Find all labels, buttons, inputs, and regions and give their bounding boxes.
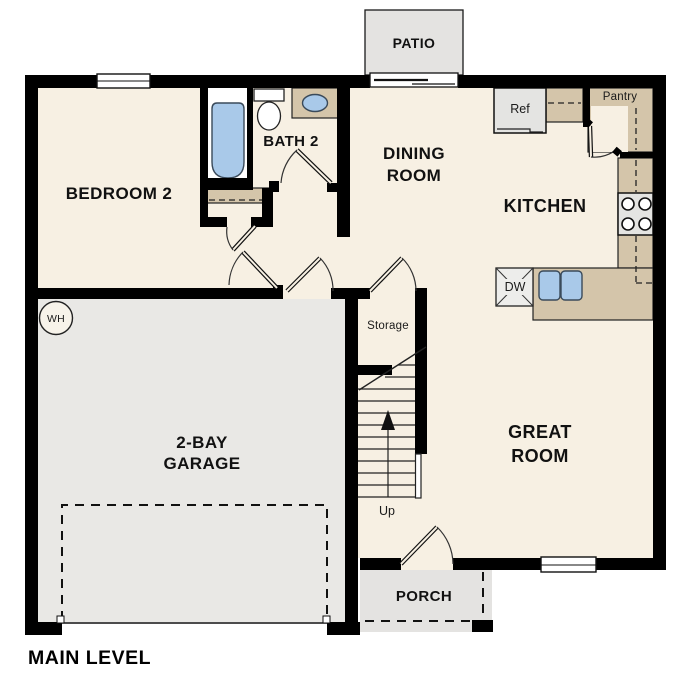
wall-storage-top-right bbox=[415, 288, 427, 299]
greatroom-label-line2: ROOM bbox=[511, 446, 569, 466]
wall-closet-foot-left bbox=[200, 217, 227, 227]
toilet-tank-icon bbox=[254, 89, 284, 101]
storage-label: Storage bbox=[367, 320, 409, 332]
wall-garage-right bbox=[345, 288, 358, 635]
wall-bath-door-stub-right bbox=[327, 183, 338, 192]
bedroom2-label: BEDROOM 2 bbox=[66, 184, 173, 203]
wall-top-right bbox=[458, 75, 666, 88]
wall-storage-top-left bbox=[358, 288, 370, 299]
stairs-handrail bbox=[416, 454, 422, 498]
pantry-door-recess bbox=[591, 106, 628, 152]
kitchen-sink-icon bbox=[539, 271, 582, 300]
wall-pantry-bottom bbox=[620, 152, 653, 158]
wall-greatroom-bottom-b bbox=[453, 558, 541, 570]
wall-storage-bottom bbox=[358, 365, 392, 375]
porch-corner-post bbox=[472, 620, 493, 632]
plan-title: MAIN LEVEL bbox=[28, 647, 151, 669]
bedroom-closet-shelf bbox=[207, 188, 270, 203]
bedroom-window bbox=[97, 74, 150, 88]
wall-left bbox=[25, 75, 38, 635]
ref-label: Ref bbox=[510, 102, 530, 116]
kitchen-label: KITCHEN bbox=[504, 196, 587, 216]
dw-label: DW bbox=[505, 280, 526, 294]
wall-bedroom-garage bbox=[38, 288, 283, 299]
toilet-bowl-icon bbox=[258, 102, 281, 130]
bath-sink-icon bbox=[303, 95, 328, 112]
wh-label: WH bbox=[47, 313, 65, 325]
wall-stairs-right bbox=[415, 299, 427, 454]
wall-garage-bottom-a bbox=[25, 622, 62, 635]
patio-label: PATIO bbox=[393, 35, 436, 51]
wall-tub-right bbox=[247, 87, 253, 180]
garage-label-line2: GARAGE bbox=[163, 454, 240, 473]
wall-bath-dining bbox=[337, 75, 350, 237]
kitchen-counter-by-ref bbox=[546, 88, 583, 122]
porch-label: PORCH bbox=[396, 588, 452, 605]
greatroom-label-line1: GREAT bbox=[508, 422, 572, 442]
dining-label-line1: DINING bbox=[383, 144, 445, 163]
front-door-threshold bbox=[401, 558, 453, 570]
garage-label-line1: 2-BAY bbox=[176, 433, 228, 452]
patio-sliding-door bbox=[370, 73, 458, 87]
pantry-label: Pantry bbox=[603, 91, 637, 103]
wall-bedroom-right bbox=[200, 87, 208, 190]
floor-plan-svg: BEDROOM 2 BATH 2 DINING ROOM KITCHEN GRE… bbox=[0, 0, 687, 687]
dining-label-line2: ROOM bbox=[387, 166, 441, 185]
greatroom-window bbox=[541, 557, 596, 572]
bath2-label: BATH 2 bbox=[263, 133, 318, 150]
wall-right bbox=[653, 75, 666, 570]
bathtub-icon bbox=[212, 103, 244, 178]
wall-greatroom-bottom-c bbox=[596, 558, 666, 570]
floor-plan-page: BEDROOM 2 BATH 2 DINING ROOM KITCHEN GRE… bbox=[0, 0, 687, 687]
up-label: Up bbox=[379, 504, 395, 518]
wall-greatroom-bottom-a bbox=[360, 558, 401, 570]
